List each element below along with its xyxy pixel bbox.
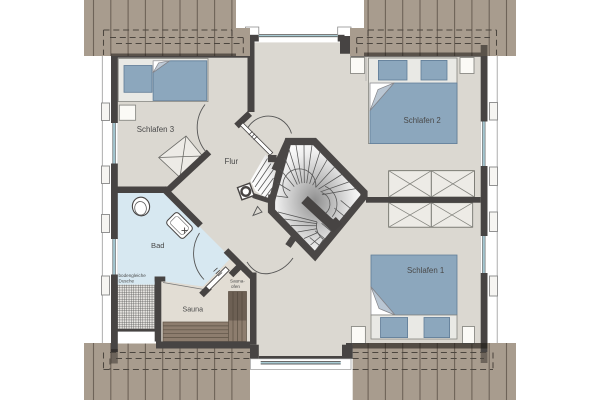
svg-text:Sauna-: Sauna- bbox=[230, 279, 245, 284]
svg-text:Bad: Bad bbox=[151, 241, 165, 250]
svg-text:Dusche: Dusche bbox=[119, 278, 135, 283]
svg-text:ofen: ofen bbox=[231, 284, 240, 289]
svg-text:Flur: Flur bbox=[225, 157, 239, 166]
svg-text:Sauna: Sauna bbox=[183, 306, 204, 314]
svg-text:Schlafen 1: Schlafen 1 bbox=[407, 266, 444, 275]
svg-text:Schlafen 3: Schlafen 3 bbox=[137, 125, 175, 134]
svg-text:bodengleiche: bodengleiche bbox=[119, 273, 147, 278]
svg-text:Schlafen 2: Schlafen 2 bbox=[404, 116, 441, 125]
